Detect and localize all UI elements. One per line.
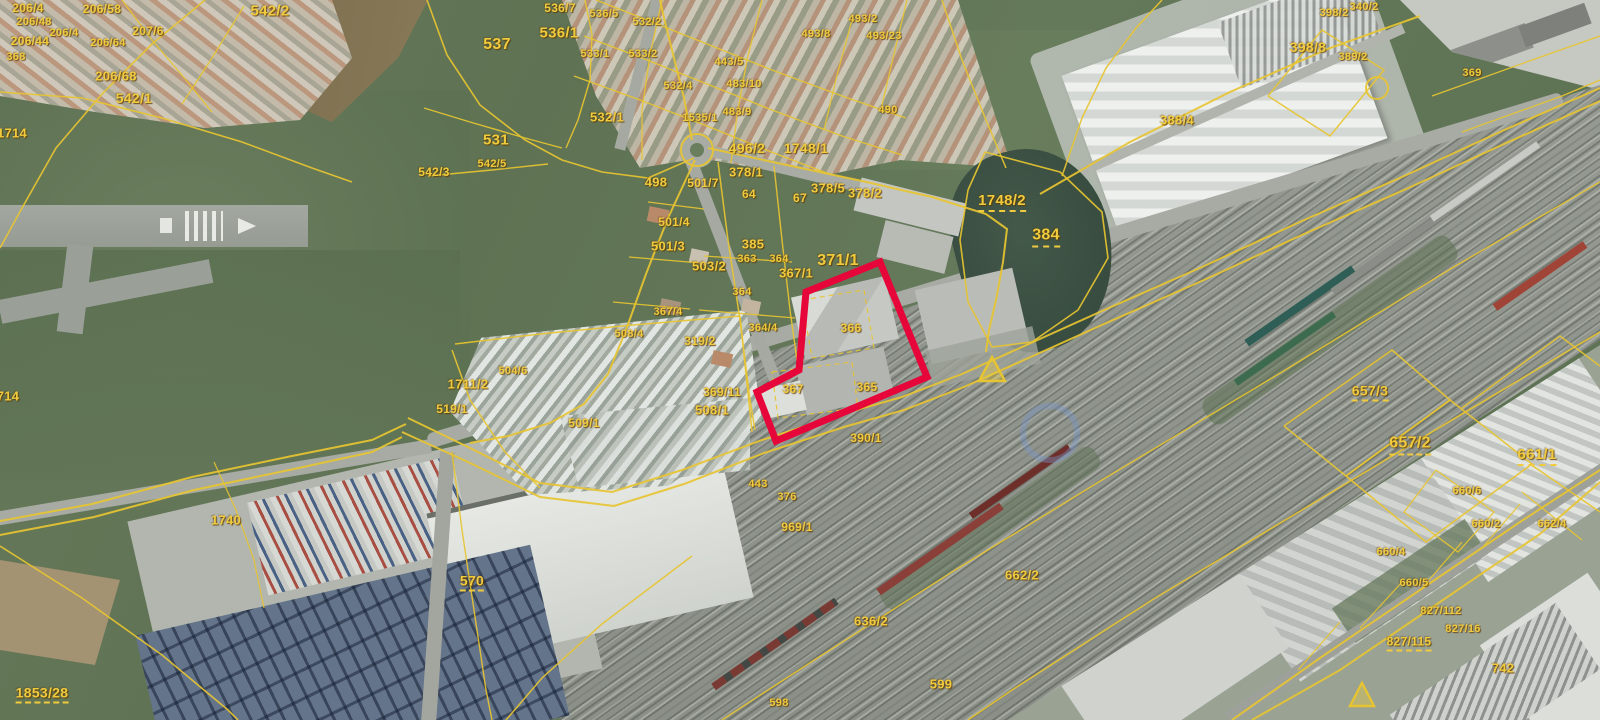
roundabout-island [690,143,704,157]
runway [0,205,308,247]
map-canvas[interactable]: 206/4206/58542/2536/7206/48206/44206/420… [0,0,1600,720]
industrial-building [1518,3,1591,48]
runway-number [160,218,172,233]
runway-threshold-stripes [185,211,223,241]
